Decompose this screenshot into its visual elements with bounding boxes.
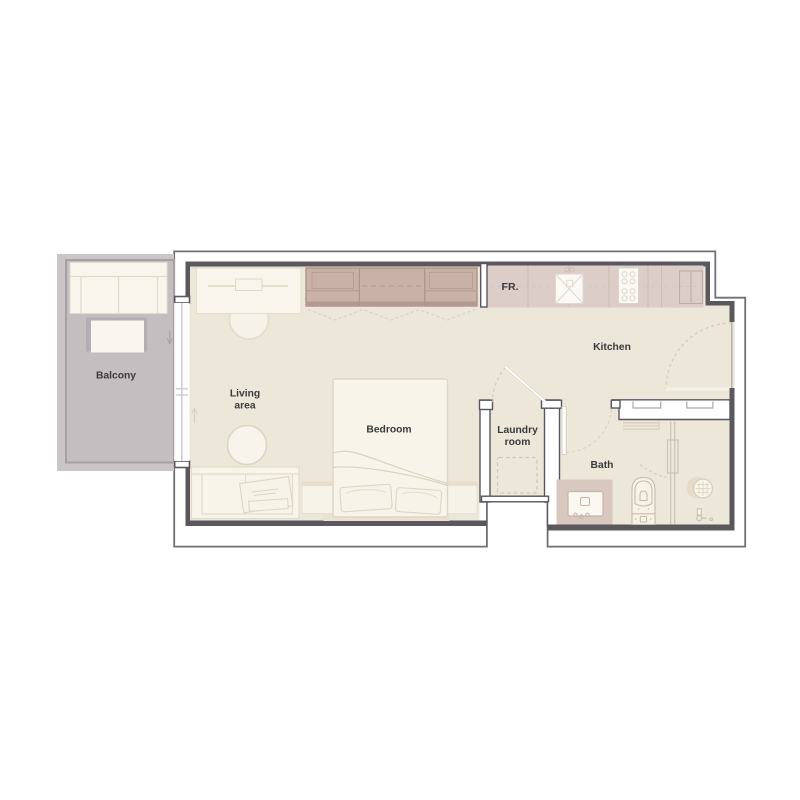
svg-text:area: area — [234, 401, 255, 412]
svg-text:room: room — [505, 437, 531, 448]
svg-text:Balcony: Balcony — [96, 371, 136, 382]
svg-text:Bedroom: Bedroom — [366, 425, 411, 436]
svg-text:FR.: FR. — [502, 281, 519, 293]
svg-text:Laundry: Laundry — [497, 425, 538, 436]
svg-text:Bath: Bath — [591, 460, 614, 471]
svg-text:Kitchen: Kitchen — [593, 342, 631, 353]
svg-text:Living: Living — [230, 389, 260, 400]
